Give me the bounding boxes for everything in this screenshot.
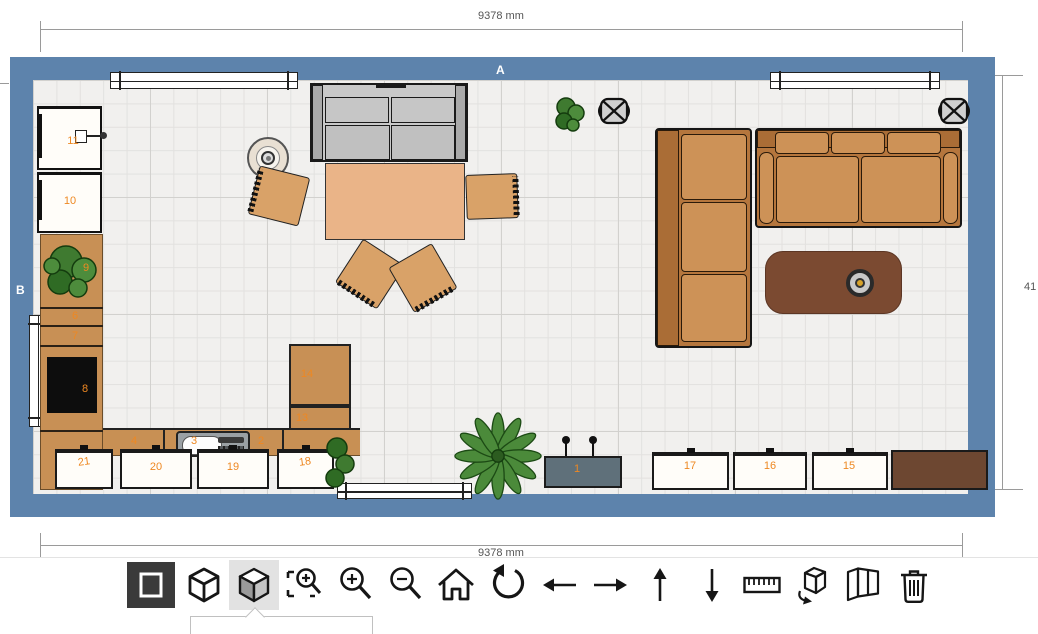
- ceiling-lamp-icon[interactable]: [937, 96, 971, 126]
- dining-chair[interactable]: [465, 173, 519, 220]
- sofa-cushion: [681, 274, 747, 342]
- item-label-4: 4: [131, 435, 137, 447]
- corner-plant[interactable]: [315, 434, 355, 490]
- box-open-icon: [841, 563, 885, 607]
- sofa-seat-cushion: [861, 156, 941, 223]
- window-cap: [779, 71, 781, 90]
- view-3d-shaded-button[interactable]: [229, 560, 279, 610]
- item-label-15: 15: [843, 460, 855, 472]
- right-dimension-line: [1002, 75, 1003, 489]
- sofa-seat-cushion: [391, 125, 455, 160]
- bottom-dimension-tick-right: [962, 533, 963, 557]
- arrow-up-icon: [638, 563, 682, 607]
- item-label-11: 11: [67, 135, 78, 147]
- left-dimension-stub: [0, 83, 9, 84]
- measure-button[interactable]: [740, 562, 784, 608]
- sofa-backrest: [657, 130, 679, 346]
- item-label-17: 17: [684, 460, 696, 472]
- trash-icon: [892, 563, 936, 607]
- sofa-cushion: [681, 134, 747, 200]
- wall-label-a: A: [496, 63, 505, 77]
- lamp-dot: [562, 436, 570, 444]
- item-label-9: 9: [83, 262, 89, 274]
- arrow-down-icon: [690, 563, 734, 607]
- lamp-dot: [589, 436, 597, 444]
- dining-table[interactable]: [325, 163, 465, 240]
- window-cap: [119, 71, 121, 90]
- zoom-out-button[interactable]: [384, 562, 428, 608]
- window-glass-line: [111, 81, 297, 83]
- delete-button[interactable]: [892, 562, 936, 608]
- small-plant[interactable]: [552, 95, 588, 135]
- item-label-2: 2: [258, 435, 264, 447]
- bottom-dimension-line: [40, 545, 963, 546]
- tooltip: [190, 616, 373, 634]
- cabinet-hinge: [37, 180, 42, 220]
- brown-sofa-vertical[interactable]: [655, 128, 752, 348]
- sofa-cushion: [681, 202, 747, 272]
- window-glass-line: [771, 81, 939, 83]
- sofa-armrest: [943, 152, 958, 224]
- brown-sofa-horizontal[interactable]: [755, 128, 962, 228]
- top-dimension-line: [40, 29, 963, 30]
- floor-planner-app: 9378 mm 9378 mm 41 A B: [0, 0, 1038, 634]
- right-dimension-tick-top: [993, 75, 1023, 76]
- tv-bench[interactable]: [544, 456, 622, 488]
- right-dimension-tick-bottom: [993, 489, 1023, 490]
- unit-divider: [40, 430, 103, 432]
- palm-plant[interactable]: [452, 412, 544, 500]
- zoom-to-selection-button[interactable]: [282, 562, 326, 608]
- sofa-back-cushion: [775, 132, 829, 154]
- window-top-right[interactable]: [770, 72, 940, 89]
- dark-corner-cabinet[interactable]: [891, 450, 988, 490]
- view-2d-button[interactable]: [127, 562, 175, 608]
- arrow-right-icon: [588, 563, 632, 607]
- table-ring: [266, 156, 271, 161]
- cube-solid-icon: [232, 563, 276, 607]
- top-dimension-label: 9378 mm: [478, 10, 524, 22]
- top-dimension-tick-left: [40, 21, 41, 52]
- item-label-3: 3: [191, 435, 197, 447]
- wall-label-b: B: [16, 283, 25, 297]
- ruler-icon: [740, 563, 784, 607]
- home-button[interactable]: [434, 562, 478, 608]
- sofa-back-cushion: [887, 132, 941, 154]
- cube-outline-icon: [182, 563, 226, 607]
- item-label-13: 13: [296, 412, 308, 424]
- item-label-14: 14: [301, 368, 313, 380]
- item-label-16: 16: [764, 460, 776, 472]
- square-outline-icon: [129, 563, 173, 607]
- view-3d-wireframe-button[interactable]: [182, 562, 226, 608]
- item-label-8: 8: [82, 383, 88, 395]
- move-down-button[interactable]: [690, 562, 734, 608]
- sofa-back-cushion: [325, 97, 389, 123]
- rotate-object-button[interactable]: [790, 562, 834, 608]
- sofa-back-cushion: [391, 97, 455, 123]
- sofa-seat-cushion: [325, 125, 390, 160]
- item-label-1: 1: [574, 463, 580, 475]
- gray-sofa[interactable]: [310, 83, 468, 162]
- box-rotate-icon: [790, 563, 834, 607]
- toolbar-divider: [0, 557, 1038, 558]
- move-left-button[interactable]: [538, 562, 582, 608]
- zoom-in-button[interactable]: [334, 562, 378, 608]
- wall-lamp-dot: [100, 132, 107, 139]
- bowl: [846, 269, 874, 297]
- unit-divider: [40, 345, 103, 347]
- sofa-seat-cushion: [776, 156, 859, 223]
- open-doors-button[interactable]: [841, 562, 885, 608]
- potted-plant[interactable]: [40, 236, 104, 308]
- sofa-notch: [376, 83, 406, 88]
- item-label-19: 19: [227, 461, 239, 473]
- item-label-18: 18: [298, 455, 312, 469]
- item-label-21: 21: [77, 455, 91, 469]
- wall-lamp-arm: [87, 135, 101, 137]
- coffee-table[interactable]: [765, 251, 902, 314]
- sofa-armrest: [312, 85, 323, 160]
- ceiling-lamp-icon[interactable]: [597, 96, 631, 126]
- cooktop-panel: [218, 437, 244, 443]
- top-dimension-tick-right: [962, 21, 963, 52]
- item-label-6: 6: [72, 310, 78, 322]
- window-top-left[interactable]: [110, 72, 298, 89]
- tall-cabinet-14[interactable]: [289, 344, 351, 406]
- sofa-armrest: [759, 152, 774, 224]
- house-icon: [434, 563, 478, 607]
- window-cap: [287, 71, 289, 90]
- magnifier-minus-icon: [384, 563, 428, 607]
- magnifier-plus-icon: [334, 563, 378, 607]
- bottom-dimension-tick-left: [40, 533, 41, 557]
- item-label-20: 20: [150, 461, 162, 473]
- window-glass-line: [38, 316, 40, 426]
- window-cap: [929, 71, 931, 90]
- oven[interactable]: [47, 357, 97, 413]
- right-dimension-label: 41: [1024, 281, 1036, 293]
- sofa-armrest: [455, 85, 466, 160]
- unit-divider: [40, 325, 103, 327]
- arrow-left-icon: [538, 563, 582, 607]
- cabinet-hinge: [37, 114, 42, 158]
- rotate-view-button[interactable]: [486, 562, 530, 608]
- item-label-10: 10: [64, 195, 76, 207]
- move-right-button[interactable]: [588, 562, 632, 608]
- move-up-button[interactable]: [638, 562, 682, 608]
- magnifier-select-icon: [282, 563, 326, 607]
- sofa-back-cushion: [831, 132, 885, 154]
- item-label-7: 7: [72, 330, 78, 342]
- rotate-arrow-icon: [486, 563, 530, 607]
